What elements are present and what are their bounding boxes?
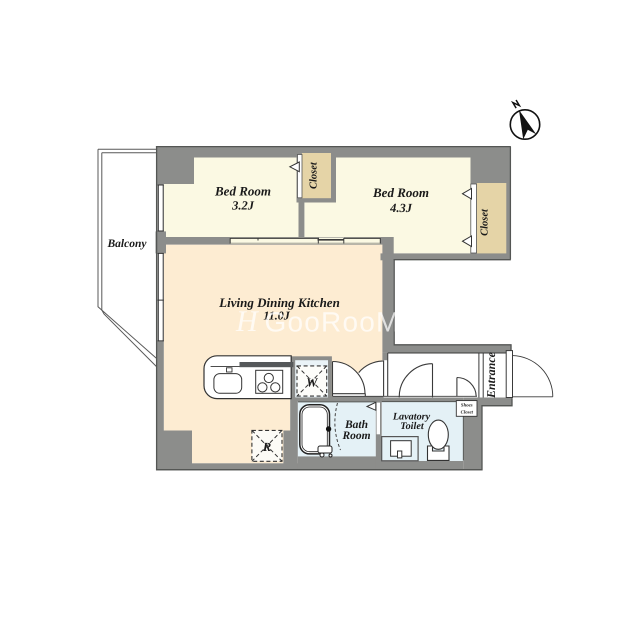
svg-text:Room: Room bbox=[341, 430, 370, 442]
svg-text:R: R bbox=[262, 440, 271, 454]
svg-text:Bed Room: Bed Room bbox=[372, 185, 429, 200]
svg-text:GooRooM: GooRooM bbox=[265, 307, 401, 338]
svg-text:4.3J: 4.3J bbox=[389, 201, 413, 215]
svg-text:W: W bbox=[306, 375, 318, 389]
svg-text:Toilet: Toilet bbox=[400, 421, 425, 432]
svg-text:Entrance: Entrance bbox=[484, 351, 498, 399]
svg-text:Closet: Closet bbox=[308, 161, 319, 189]
svg-text:H: H bbox=[235, 305, 260, 338]
svg-text:Balcony: Balcony bbox=[107, 238, 148, 250]
svg-text:Shoes: Shoes bbox=[461, 403, 473, 409]
svg-text:Closet: Closet bbox=[461, 409, 474, 415]
svg-text:Bed Room: Bed Room bbox=[214, 184, 271, 199]
svg-text:3.2J: 3.2J bbox=[231, 198, 255, 212]
svg-text:Closet: Closet bbox=[479, 208, 490, 236]
